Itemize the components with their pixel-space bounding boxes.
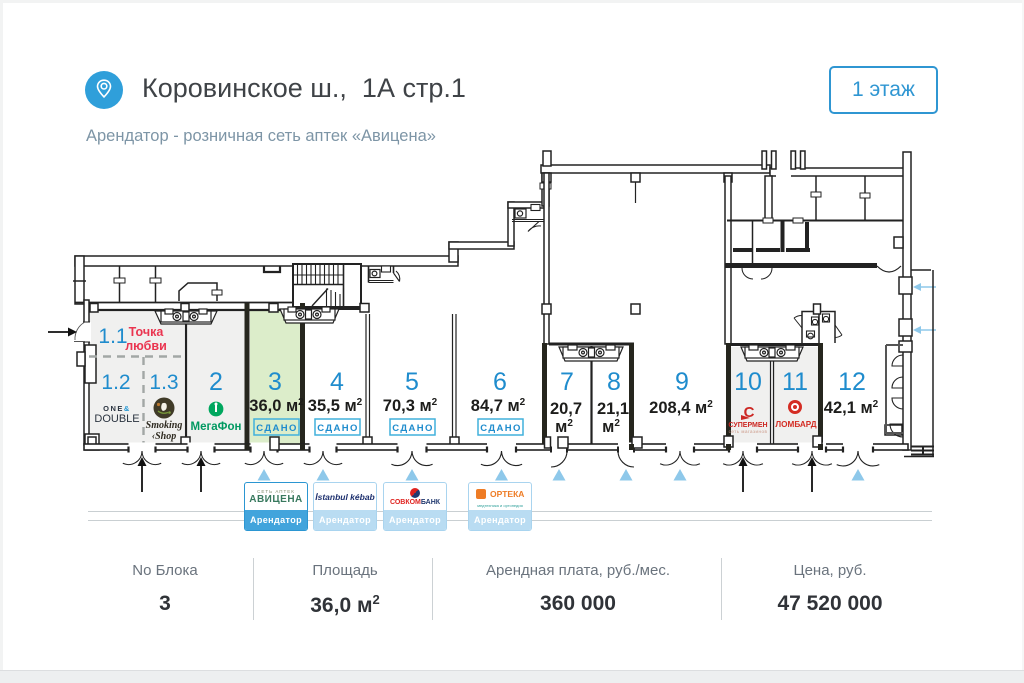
svg-text:10: 10 — [734, 368, 762, 396]
svg-text:21,1: 21,1 — [597, 400, 629, 418]
svg-text:208,4 м2: 208,4 м2 — [649, 399, 713, 417]
svg-text:СДАНО: СДАНО — [480, 423, 522, 434]
svg-text:20,7: 20,7 — [550, 400, 582, 418]
svg-text:1.2: 1.2 — [101, 371, 130, 394]
svg-text:3: 3 — [268, 368, 282, 396]
svg-text:5: 5 — [405, 368, 419, 396]
svg-text:МегаФон: МегаФон — [191, 421, 242, 433]
svg-text:СДАНО: СДАНО — [256, 423, 298, 434]
svg-text:42,1 м2: 42,1 м2 — [824, 399, 879, 417]
svg-text:Smoking: Smoking — [146, 420, 183, 431]
svg-text:ONE&: ONE& — [103, 404, 131, 413]
svg-text:1.1: 1.1 — [98, 325, 127, 348]
svg-text:сеть магазинов: сеть магазинов — [729, 429, 768, 434]
svg-text:СДАНО: СДАНО — [392, 423, 434, 434]
svg-text:9: 9 — [675, 368, 689, 396]
svg-text:2: 2 — [209, 368, 223, 396]
svg-text:35,5 м2: 35,5 м2 — [308, 397, 363, 415]
svg-text:6: 6 — [493, 368, 507, 396]
svg-text:‹Shop: ‹Shop — [152, 431, 176, 442]
svg-text:Точка: Точка — [129, 325, 165, 339]
svg-text:1.3: 1.3 — [149, 371, 178, 394]
svg-text:4: 4 — [330, 368, 344, 396]
svg-text:ЛОМБАРД: ЛОМБАРД — [775, 420, 816, 429]
svg-text:СДАНО: СДАНО — [317, 423, 359, 434]
svg-text:7: 7 — [560, 368, 574, 396]
svg-text:м2: м2 — [602, 418, 620, 436]
svg-text:84,7 м2: 84,7 м2 — [471, 397, 526, 415]
svg-text:12: 12 — [838, 368, 866, 396]
svg-text:м2: м2 — [555, 418, 573, 436]
svg-text:любви: любви — [125, 339, 167, 353]
svg-text:36,0 м2: 36,0 м2 — [249, 397, 304, 415]
svg-text:70,3 м2: 70,3 м2 — [383, 397, 438, 415]
svg-text:8: 8 — [607, 368, 621, 396]
svg-text:СУПЕРМЕН: СУПЕРМЕН — [728, 422, 767, 429]
svg-text:11: 11 — [782, 368, 808, 396]
svg-text:DOUBLE: DOUBLE — [94, 413, 139, 425]
